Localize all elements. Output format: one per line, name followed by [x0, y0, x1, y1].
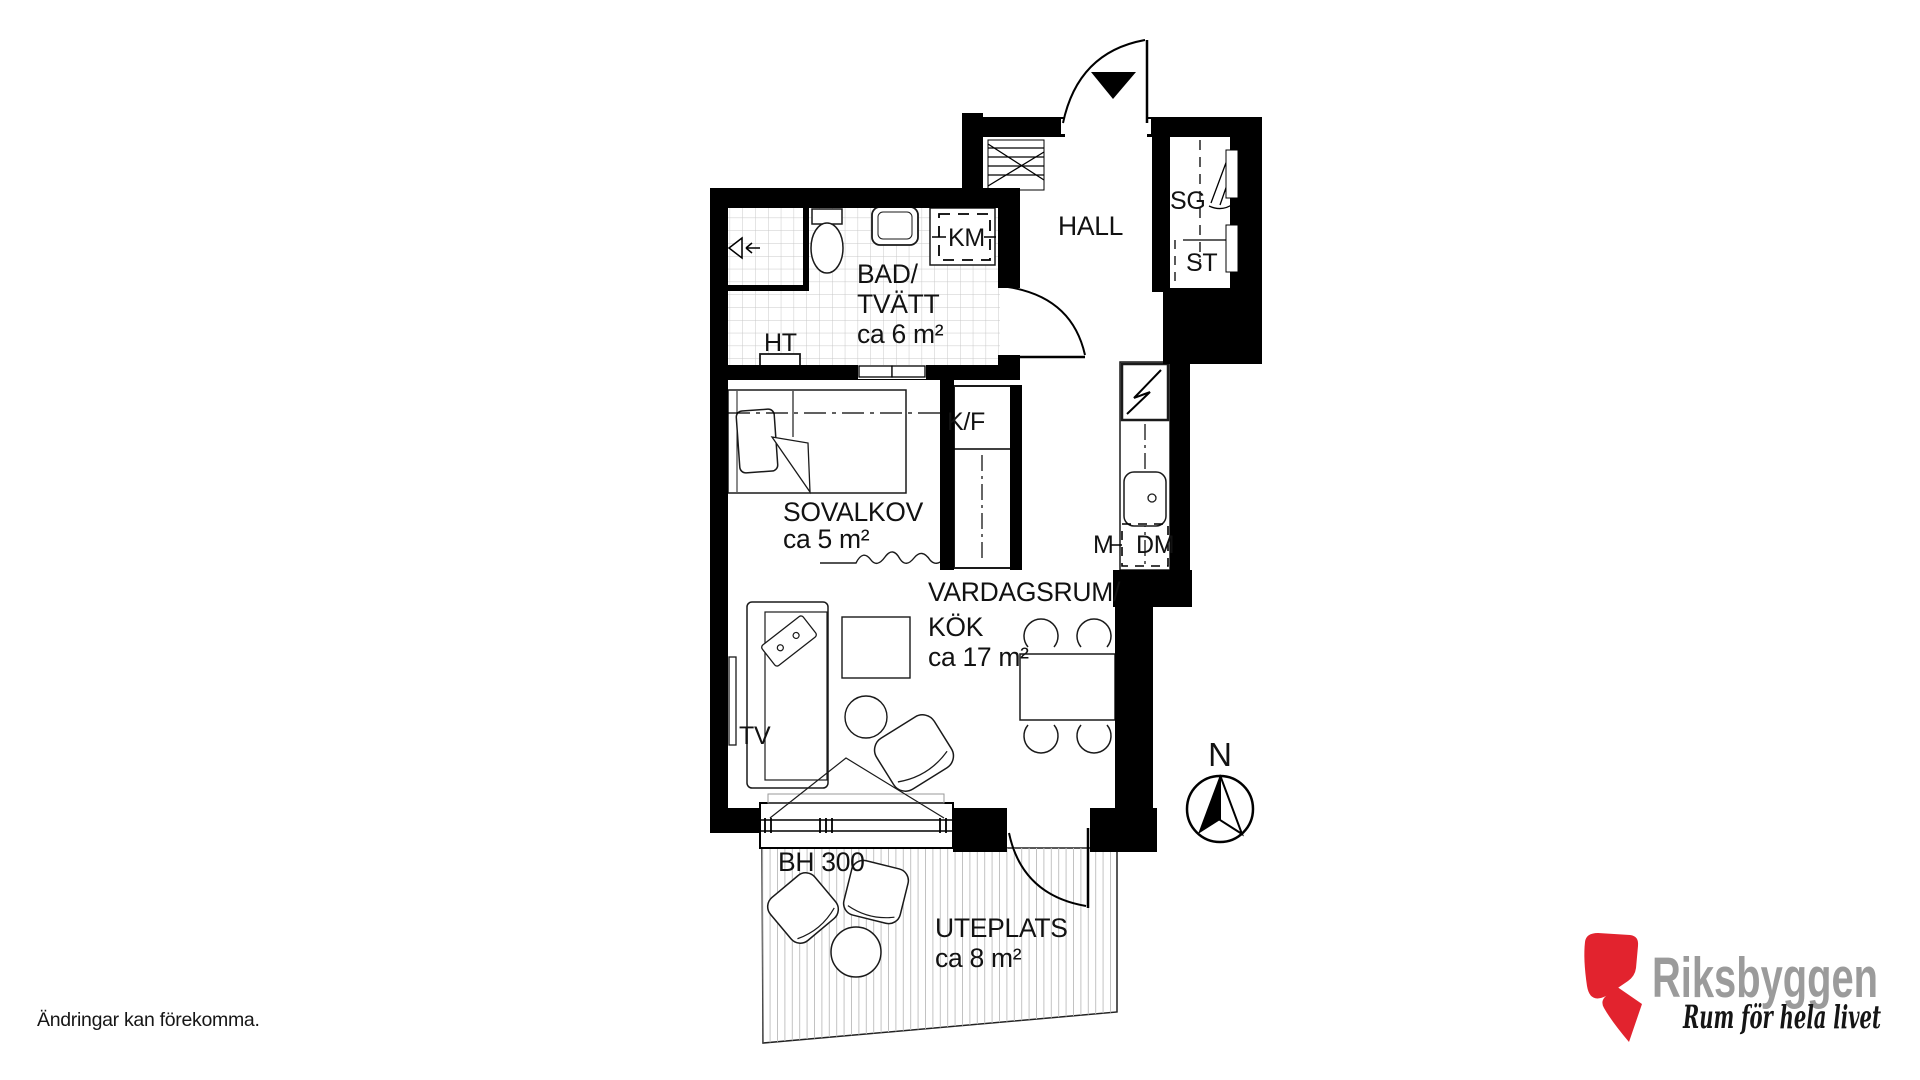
label-m: M: [1093, 531, 1114, 559]
floor-plan: BAD/ TVÄTT ca 6 m² HT KM HALL SG ST K/F …: [0, 0, 1920, 1080]
label-bh300: BH 300: [778, 847, 865, 877]
dining-table: [1020, 654, 1115, 720]
room-label-kok: KÖK: [928, 612, 984, 642]
label-st: ST: [1186, 249, 1217, 277]
dining-chair: [1077, 619, 1111, 647]
room-area-bad: ca 6 m²: [857, 319, 944, 349]
stove-icon: [1122, 364, 1168, 420]
label-km: KM: [948, 224, 985, 252]
brand-tagline: Rum för hela livet: [1682, 998, 1881, 1036]
bed: [728, 390, 906, 493]
kitchen-sink-icon: [1124, 472, 1166, 526]
riksbyggen-logo: Riksbyggen Rum för hela livet: [1584, 933, 1881, 1042]
dining-chair: [1024, 619, 1058, 647]
bathroom-door: [1002, 287, 1085, 357]
dining-chair: [1077, 725, 1111, 753]
pillow-icon: [736, 409, 778, 473]
room-area-sovalkov: ca 5 m²: [783, 524, 870, 554]
tv-marker: [729, 657, 736, 745]
label-kf: K/F: [947, 408, 985, 436]
entrance-door: [1063, 40, 1147, 123]
entrance-arrow-icon: [1091, 72, 1136, 99]
label-sg: SG: [1170, 187, 1206, 215]
label-ht: HT: [764, 329, 797, 357]
pouf: [845, 696, 887, 738]
washbasin-icon: [872, 207, 918, 245]
room-label-uteplats: UTEPLATS: [935, 913, 1068, 943]
north-label: N: [1208, 736, 1232, 773]
label-dm: DM: [1136, 531, 1174, 559]
room-label-vardagsrum: VARDAGSRUM/: [928, 577, 1121, 607]
toilet-icon: [811, 209, 843, 273]
room-label-bad-line1: BAD/: [857, 259, 919, 289]
wall-niche: [1226, 150, 1238, 198]
sliding-door-bathroom: [858, 365, 926, 379]
coffee-table: [842, 617, 910, 678]
room-area-vardagsrum: ca 17 m²: [928, 642, 1029, 672]
label-tv: TV: [739, 722, 771, 750]
room-label-hall: HALL: [1058, 211, 1123, 241]
room-area-uteplats: ca 8 m²: [935, 943, 1022, 973]
dining-chair: [1024, 725, 1058, 753]
room-label-bad-line2: TVÄTT: [857, 289, 940, 319]
floor-plan-page: BAD/ TVÄTT ca 6 m² HT KM HALL SG ST K/F …: [0, 0, 1920, 1080]
sofa: [747, 602, 828, 788]
disclaimer-text: Ändringar kan förekomma.: [37, 1009, 260, 1031]
logo-mark: [1584, 933, 1642, 1042]
wall-niche: [1226, 225, 1238, 272]
patio-table: [831, 927, 881, 977]
coat-rack-icon: [988, 140, 1044, 190]
room-label-sovalkov: SOVALKOV: [783, 497, 924, 527]
north-arrow: N: [1187, 736, 1253, 842]
